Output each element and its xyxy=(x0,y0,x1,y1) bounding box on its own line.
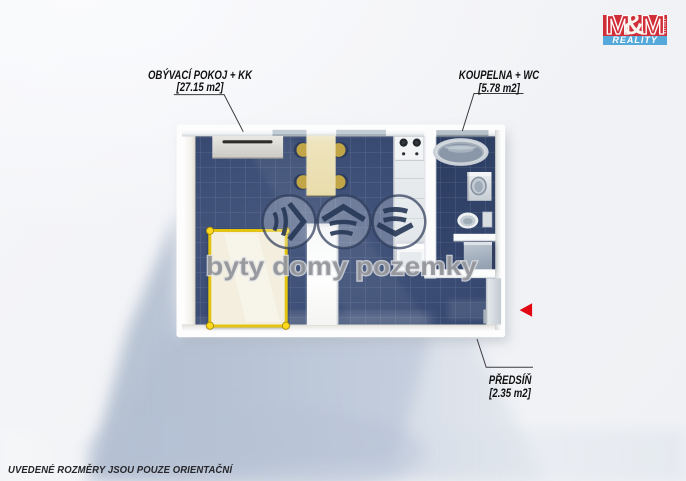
svg-text:byty domy pozemky: byty domy pozemky xyxy=(206,251,478,281)
